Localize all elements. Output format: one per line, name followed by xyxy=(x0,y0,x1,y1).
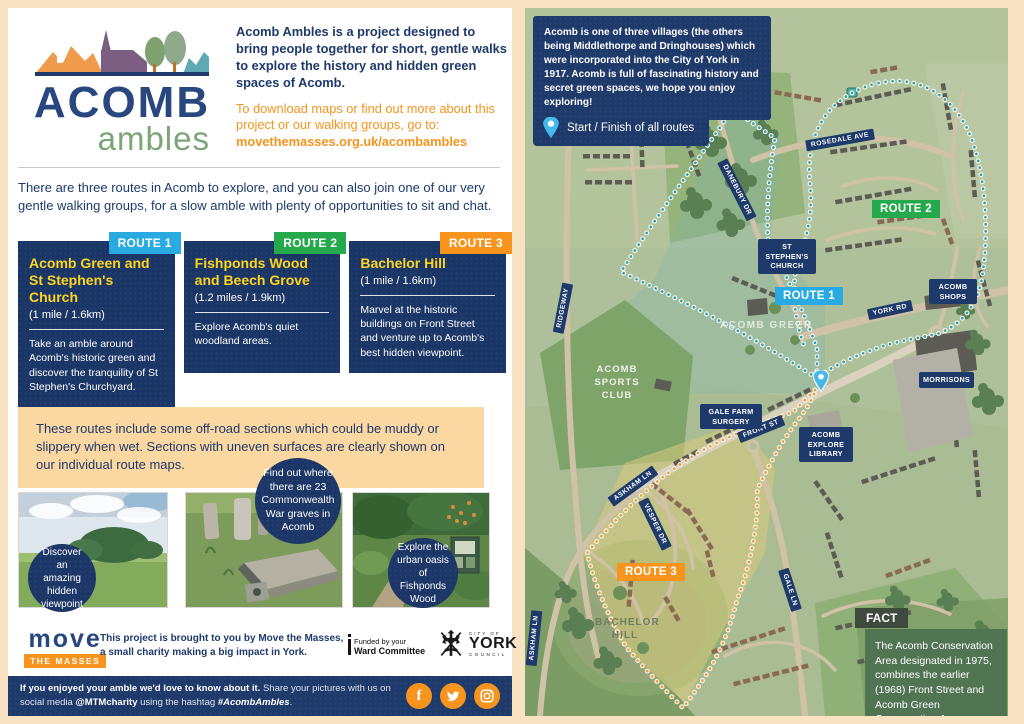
map-route-1-badge: ROUTE 1 xyxy=(775,287,843,305)
route-3-badge: ROUTE 3 xyxy=(440,232,512,254)
fact-tab: FACT xyxy=(855,608,908,628)
footer-band: If you enjoyed your amble we'd love to k… xyxy=(8,676,512,716)
download-cta: To download maps or find out more about … xyxy=(236,101,508,152)
ward-line2: Ward Committee xyxy=(354,646,425,657)
twitter-bird-glyph xyxy=(446,690,460,702)
twitter-icon[interactable] xyxy=(440,683,466,709)
header-divider xyxy=(18,167,500,168)
area-acomb-green: ACOMB GREEN xyxy=(720,320,813,331)
project-description: Acomb Ambles is a project designed to br… xyxy=(236,24,508,92)
route-2-title: Fishponds Wood and Beech Grove xyxy=(195,255,330,289)
woodland-photo-illustration xyxy=(353,493,490,608)
website-link[interactable]: movethemasses.org.uk/acombambles xyxy=(236,134,508,151)
facebook-icon[interactable]: f xyxy=(406,683,432,709)
area-acomb-sports-club: ACOMB SPORTS CLUB xyxy=(581,364,653,402)
fishponds-bubble: Explore the urban oasis of Fishponds Woo… xyxy=(388,538,458,608)
photo-fishponds-wood xyxy=(352,492,490,608)
york-bottom: COUNCIL xyxy=(469,652,517,657)
route-3-distance: (1 mile / 1.6km) xyxy=(360,275,495,287)
ward-line1: Funded by your xyxy=(354,637,425,646)
label-acomb-explore-library: ACOMB EXPLORE LIBRARY xyxy=(799,427,853,462)
ward-committee-mark-icon xyxy=(348,639,351,655)
credit-text: This project is brought to you by Move t… xyxy=(100,632,350,660)
acomb-map: Acomb is one of three villages (the othe… xyxy=(525,8,1008,716)
route-1-distance: (1 mile / 1.6km) xyxy=(29,309,164,321)
route-1-description: Take an amble around Acomb's historic gr… xyxy=(29,337,164,394)
move-the-masses-logo: move THE MASSES xyxy=(24,628,106,669)
route-1-card: ROUTE 1 Acomb Green and St Stephen's Chu… xyxy=(18,241,175,407)
acomb-ambles-logo: ACOMB ambles xyxy=(24,22,220,158)
footer-bold: If you enjoyed your amble we'd love to k… xyxy=(20,683,260,694)
leaflet-left-page: ACOMB ambles Acomb Ambles is a project d… xyxy=(8,8,512,716)
footer-end: . xyxy=(290,697,293,708)
footer-mid2: using the hashtag xyxy=(138,697,218,708)
route-3-card: ROUTE 3 Bachelor Hill (1 mile / 1.6km) M… xyxy=(349,241,506,373)
route-2-description: Explore Acomb's quiet woodland areas. xyxy=(195,320,330,348)
label-st-stephens-church: ST STEPHEN'S CHURCH xyxy=(758,239,816,274)
area-bachelor-hill: BACHELOR HILL xyxy=(595,616,655,642)
york-main: YORK xyxy=(469,636,517,652)
label-acomb-shops: ACOMB SHOPS xyxy=(929,279,977,304)
fact-text: The Acomb Conservation Area designated i… xyxy=(865,629,1007,716)
map-pin-icon xyxy=(543,117,559,139)
instagram-icon[interactable] xyxy=(474,683,500,709)
label-morrisons: MORRISONS xyxy=(919,372,974,388)
cta-text: To download maps or find out more about … xyxy=(236,101,495,133)
label-gale-farm-surgery: GALE FARM SURGERY xyxy=(700,404,762,429)
safety-notice: These routes include some off-road secti… xyxy=(18,407,484,488)
mtm-logo-word: move xyxy=(24,628,106,651)
logo-word: ACOMB xyxy=(24,82,220,124)
map-route-2-badge: ROUTE 2 xyxy=(872,200,940,218)
route-1-title: Acomb Green and St Stephen's Church xyxy=(29,255,164,306)
york-crest-icon xyxy=(436,628,466,660)
map-route-3-badge: ROUTE 3 xyxy=(617,563,685,581)
instagram-glyph xyxy=(480,689,494,703)
field-photo-illustration xyxy=(19,493,168,608)
footer-handle: @MTMcharity xyxy=(75,697,137,708)
photo-war-graves xyxy=(185,492,343,608)
city-of-york-logo: CITY OF YORK COUNCIL xyxy=(436,628,517,660)
header-text: Acomb Ambles is a project designed to br… xyxy=(236,24,508,151)
route-cards: ROUTE 1 Acomb Green and St Stephen's Chu… xyxy=(18,241,506,407)
map-intro-box: Acomb is one of three villages (the othe… xyxy=(533,16,771,120)
mtm-logo-band: THE MASSES xyxy=(24,654,106,668)
skyline-illustration-icon xyxy=(33,22,211,82)
route-2-card: ROUTE 2 Fishponds Wood and Beech Grove (… xyxy=(184,241,341,373)
footer-hashtag: #AcombAmbles xyxy=(218,697,290,708)
route-1-badge: ROUTE 1 xyxy=(109,232,181,254)
viewpoint-bubble: Discover an amazing hidden viewpoint xyxy=(28,544,96,612)
social-icons: f xyxy=(406,683,500,709)
footer-social-text: If you enjoyed your amble we'd love to k… xyxy=(20,682,405,710)
route-3-description: Marvel at the historic buildings on Fron… xyxy=(360,303,495,360)
credits-strip: move THE MASSES This project is brought … xyxy=(8,620,512,676)
intro-paragraph: There are three routes in Acomb to explo… xyxy=(18,179,506,214)
route-2-distance: (1.2 miles / 1.9km) xyxy=(195,292,330,304)
start-finish-legend: Start / Finish of all routes xyxy=(533,109,709,146)
facebook-glyph: f xyxy=(417,688,422,705)
graveyard-photo-illustration xyxy=(186,493,343,608)
route-3-title: Bachelor Hill xyxy=(360,255,495,272)
ward-committee-logo: Funded by your Ward Committee xyxy=(348,637,425,657)
photo-acomb-green xyxy=(18,492,168,608)
route-2-badge: ROUTE 2 xyxy=(274,232,346,254)
legend-text: Start / Finish of all routes xyxy=(567,122,694,134)
start-finish-pin-icon xyxy=(813,370,829,392)
